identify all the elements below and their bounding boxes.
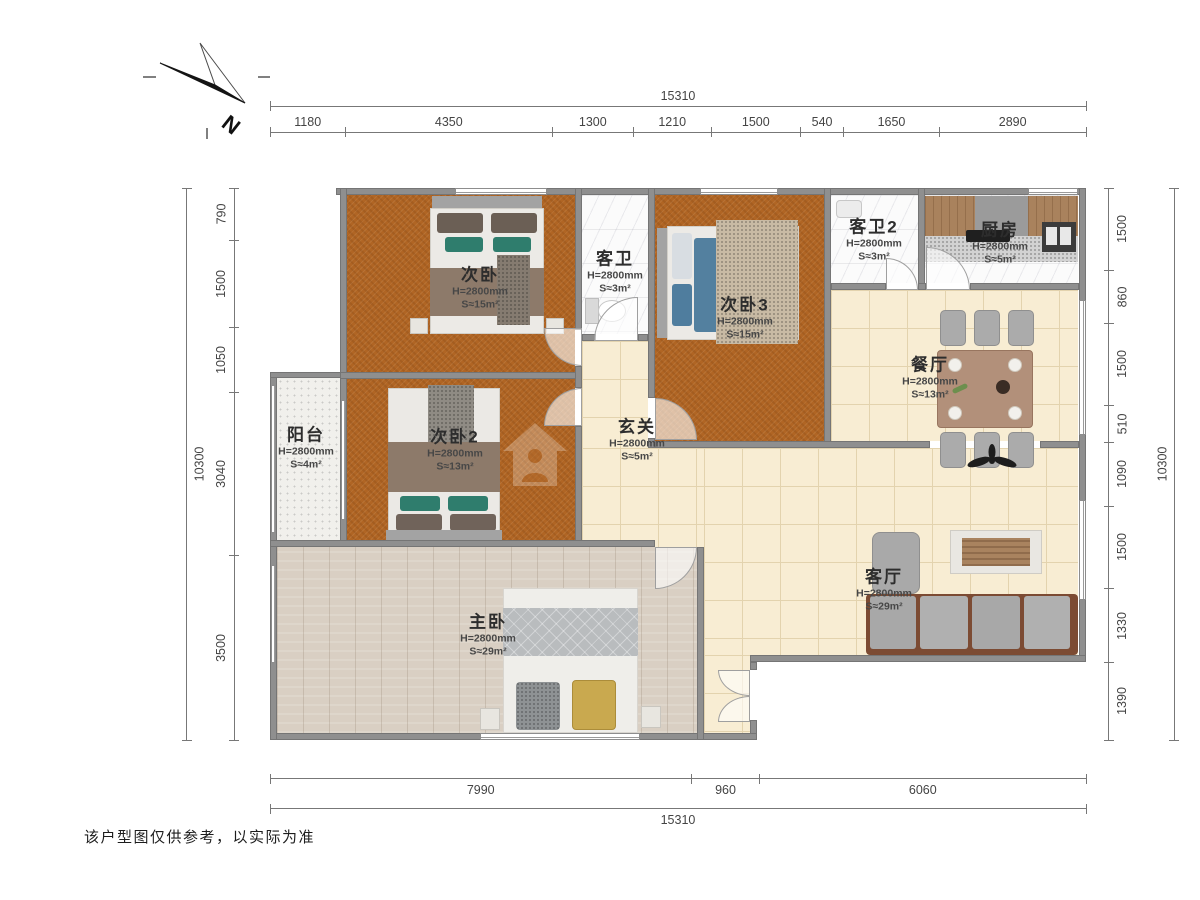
room-name: 次卧2: [427, 426, 483, 447]
dim-value: 15310: [661, 809, 696, 827]
dim-top-segments: 1180435013001210150054016502890: [270, 108, 1086, 133]
window: [271, 565, 276, 663]
room-area: S≈29m²: [856, 601, 912, 614]
room-area: S≈3m²: [587, 283, 643, 296]
wall: [824, 188, 831, 448]
sink-basin: [1060, 227, 1071, 245]
room-height: H=2800mm: [452, 286, 508, 299]
dim-value: 10300: [1155, 447, 1169, 482]
sofa-cushion: [972, 596, 1020, 649]
room-label-bedroom2: 次卧 H=2800mm S≈15m²: [452, 264, 508, 312]
dim-segment: 2890: [939, 108, 1086, 132]
plate: [1008, 406, 1022, 420]
dim-segment: 540: [801, 108, 844, 132]
room-area: S≈3m²: [846, 251, 902, 264]
wall: [918, 283, 926, 290]
room-name: 主卧: [460, 611, 516, 632]
room-name: 阳台: [278, 424, 334, 445]
nightstand: [410, 318, 428, 334]
room-label-master: 主卧 H=2800mm S≈29m²: [460, 611, 516, 659]
room-height: H=2800mm: [427, 448, 483, 461]
dim-segment: 3500: [208, 555, 234, 740]
wall: [270, 372, 347, 378]
room-label-guest-bath: 客卫 H=2800mm S≈3m²: [587, 248, 643, 296]
quilt: [503, 608, 638, 656]
room-label-guest-bath2: 客卫2 H=2800mm S≈3m²: [846, 216, 902, 264]
room-name: 玄关: [609, 416, 665, 437]
window: [455, 188, 547, 195]
dim-segment: 1300: [552, 108, 633, 132]
dim-right-total: 10300: [1150, 188, 1175, 740]
dim-top-total: 15310: [270, 84, 1086, 107]
room-area: S≈15m²: [717, 329, 773, 342]
room-label-living: 客厅 H=2800mm S≈29m²: [856, 566, 912, 614]
bed-headboard: [386, 530, 502, 540]
ottoman: [516, 682, 560, 730]
dim-segment: 1180: [270, 108, 345, 132]
dim-bottom-total: 15310: [270, 808, 1086, 835]
dim-value: 15310: [661, 89, 696, 106]
room-label-dining: 餐厅 H=2800mm S≈13m²: [902, 354, 958, 402]
cushion: [493, 237, 531, 252]
dim-segment: 1500: [711, 108, 801, 132]
wall: [750, 655, 1086, 662]
room-label-bedroom3: 次卧3 H=2800mm S≈15m²: [717, 294, 773, 342]
wall: [918, 188, 925, 290]
dim-segment: 1500: [1109, 323, 1135, 405]
window: [1028, 188, 1078, 195]
sofa-cushion: [1024, 596, 1070, 649]
dining-chair: [940, 310, 966, 346]
dining-chair: [940, 432, 966, 468]
ottoman: [572, 680, 616, 730]
room-area: S≈29m²: [460, 646, 516, 659]
dim-segment: 1330: [1109, 588, 1135, 662]
dining-chair: [1008, 310, 1034, 346]
wall: [1040, 441, 1079, 448]
room-label-kitchen: 厨房 H=2800mm S≈5m²: [972, 219, 1028, 267]
room-name: 餐厅: [902, 354, 958, 375]
room-height: H=2800mm: [972, 241, 1028, 254]
cushion: [445, 237, 483, 252]
wall: [970, 283, 1079, 290]
dim-segment: 1500: [208, 241, 234, 328]
pillow: [491, 213, 537, 233]
room-label-bedroom2b: 次卧2 H=2800mm S≈13m²: [427, 426, 483, 474]
room-height: H=2800mm: [717, 316, 773, 329]
dim-right-segments: 150086015005101090150013301390: [1108, 188, 1135, 740]
room-height: H=2800mm: [856, 588, 912, 601]
dim-segment: 1650: [844, 108, 940, 132]
pillow: [672, 233, 692, 279]
dim-segment: 7990: [270, 779, 691, 805]
wall: [575, 426, 582, 547]
dim-segment: 1500: [1109, 506, 1135, 588]
wall: [648, 188, 655, 398]
window: [271, 385, 276, 533]
room-height: H=2800mm: [846, 238, 902, 251]
room-area: S≈4m²: [278, 459, 334, 472]
floorplan-page: { "meta": { "compass": "N", "disclaimer"…: [0, 0, 1200, 900]
nightstand: [480, 708, 500, 730]
dim-bottom-segments: 79909606060: [270, 778, 1086, 805]
wall: [340, 188, 347, 379]
room-area: S≈13m²: [902, 389, 958, 402]
wall: [750, 662, 757, 670]
room-area: S≈15m²: [452, 299, 508, 312]
room-area: S≈5m²: [609, 451, 665, 464]
dining-chair: [974, 310, 1000, 346]
wall: [575, 188, 582, 330]
dim-segment: 1500: [1109, 188, 1135, 270]
north-arrow-icon: N: [140, 35, 280, 145]
dim-left-segments: 7901500105030403500: [208, 188, 235, 740]
room-name: 客厅: [856, 566, 912, 587]
dim-segment: 1390: [1109, 663, 1135, 740]
room-height: H=2800mm: [902, 376, 958, 389]
room-height: H=2800mm: [587, 270, 643, 283]
toilet-tank: [585, 298, 599, 324]
window: [1079, 500, 1086, 600]
wall: [697, 547, 704, 740]
cushion: [400, 496, 440, 511]
room-area: S≈5m²: [972, 254, 1028, 267]
room-height: H=2800mm: [609, 438, 665, 451]
room-label-balcony: 阳台 H=2800mm S≈4m²: [278, 424, 334, 472]
dim-segment: 1050: [208, 328, 234, 393]
dim-segment: 4350: [345, 108, 552, 132]
ceiling-fan-icon: [966, 444, 1018, 472]
window: [341, 400, 346, 520]
room-name: 次卧: [452, 264, 508, 285]
room-name: 客卫: [587, 248, 643, 269]
wall: [655, 441, 930, 448]
table-centerpiece: [996, 380, 1010, 394]
plate: [948, 406, 962, 420]
cushion: [448, 496, 488, 511]
dim-segment: 860: [1109, 270, 1135, 323]
window: [700, 188, 778, 195]
wall: [831, 283, 886, 290]
dim-segment: 790: [208, 188, 234, 241]
watermark-house-icon: [500, 420, 570, 490]
bed-headboard: [657, 228, 667, 338]
room-height: H=2800mm: [460, 633, 516, 646]
room-area: S≈13m²: [427, 461, 483, 474]
sink-basin: [1046, 227, 1057, 245]
plate: [1008, 358, 1022, 372]
pillow: [437, 213, 483, 233]
dim-segment: 6060: [760, 779, 1086, 805]
window: [480, 733, 640, 740]
pillow: [396, 514, 442, 531]
wall: [270, 540, 655, 547]
dim-segment: 1210: [633, 108, 711, 132]
wall: [638, 334, 648, 341]
pillow: [672, 284, 692, 326]
tv: [962, 538, 1030, 566]
room-name: 次卧3: [717, 294, 773, 315]
room-label-hallway: 玄关 H=2800mm S≈5m²: [609, 416, 665, 464]
wall: [575, 366, 582, 388]
sofa-cushion: [920, 596, 968, 649]
dim-segment: 1090: [1109, 443, 1135, 507]
window: [1079, 300, 1086, 435]
room-name: 客卫2: [846, 216, 902, 237]
nightstand: [641, 706, 661, 728]
dim-segment: 3040: [208, 393, 234, 555]
north-label: N: [217, 110, 245, 139]
room-name: 厨房: [972, 219, 1028, 240]
pillow: [450, 514, 496, 531]
dim-value: 10300: [192, 447, 206, 482]
bed-headboard: [432, 196, 542, 208]
dim-segment: 960: [691, 779, 759, 805]
room-height: H=2800mm: [278, 446, 334, 459]
dim-segment: 510: [1109, 405, 1135, 442]
wall: [340, 372, 582, 379]
